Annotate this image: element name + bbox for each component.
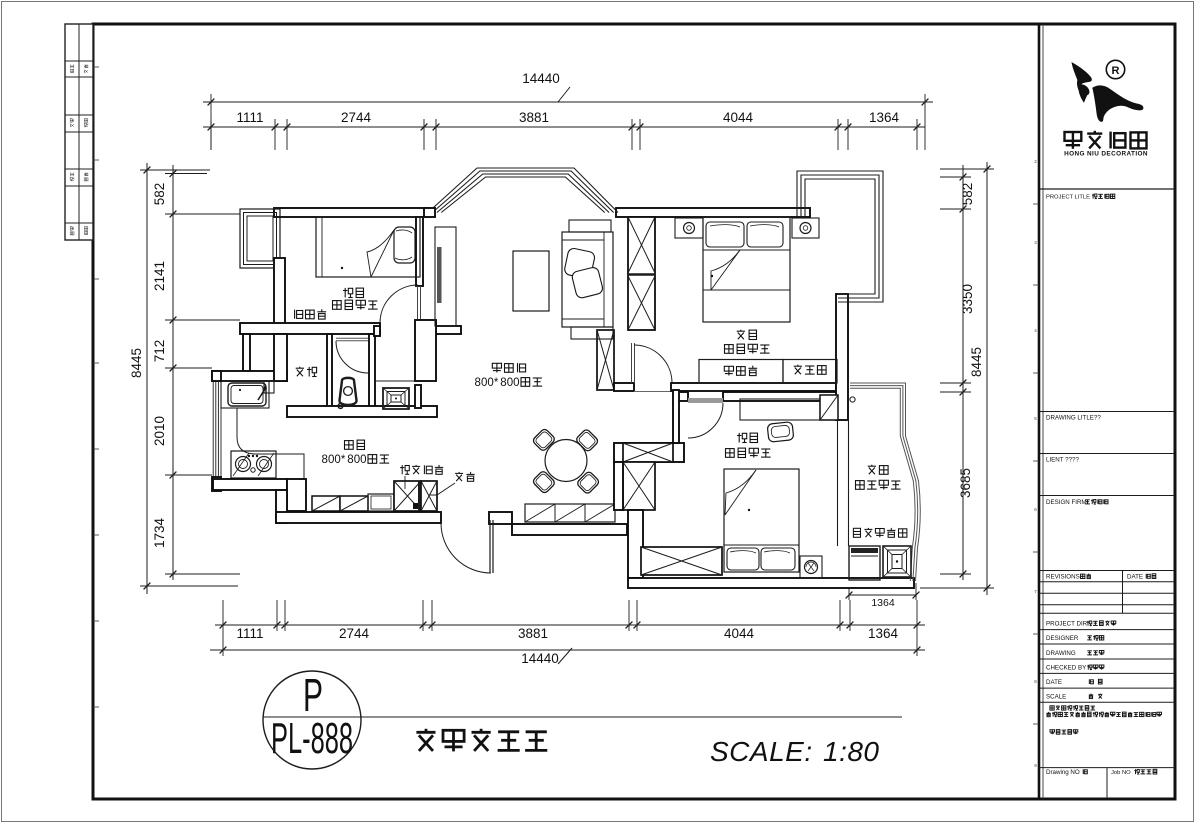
svg-text:3881: 3881 (519, 110, 549, 125)
svg-text:1:80: 1:80 (823, 736, 880, 767)
svg-text:DESIGN FIRM: DESIGN FIRM (1046, 499, 1087, 506)
svg-text:LIENT ????: LIENT ???? (1046, 457, 1079, 464)
svg-text:4: 4 (1034, 328, 1037, 333)
svg-text:14440: 14440 (521, 651, 559, 666)
svg-text:1111: 1111 (236, 110, 263, 125)
svg-text:HONG NIU DECORATION: HONG NIU DECORATION (1064, 151, 1148, 158)
svg-text:3881: 3881 (518, 626, 548, 641)
svg-text:582: 582 (152, 183, 167, 206)
svg-text:Drawing NO: Drawing NO (1046, 769, 1080, 776)
svg-text:1734: 1734 (152, 517, 167, 548)
svg-text:9: 9 (1034, 763, 1037, 768)
svg-text:1364: 1364 (868, 626, 899, 641)
svg-text:8: 8 (322, 454, 328, 466)
svg-text:SCALE:: SCALE: (710, 736, 813, 767)
svg-text:4044: 4044 (724, 626, 755, 641)
svg-text:3350: 3350 (960, 284, 975, 314)
svg-text:8: 8 (475, 377, 481, 389)
svg-text:*: * (341, 454, 346, 466)
svg-text:*: * (494, 377, 499, 389)
svg-text:PROJECT LITLE: PROJECT LITLE (1046, 195, 1090, 201)
svg-text:712: 712 (152, 340, 167, 363)
svg-text:1364: 1364 (869, 110, 900, 125)
svg-text:3: 3 (1034, 240, 1037, 245)
svg-text:3685: 3685 (958, 468, 973, 498)
svg-text:4044: 4044 (723, 110, 754, 125)
svg-text:2744: 2744 (339, 626, 370, 641)
svg-text:2: 2 (1034, 159, 1037, 164)
svg-text:DATE: DATE (1046, 679, 1062, 686)
svg-text:1364: 1364 (871, 597, 895, 609)
svg-text:0: 0 (334, 454, 340, 466)
svg-text:0: 0 (328, 454, 334, 466)
svg-text:2010: 2010 (152, 416, 167, 446)
svg-text:PROJECT DIR: PROJECT DIR (1046, 621, 1088, 628)
svg-text:0: 0 (481, 377, 487, 389)
svg-text:DESIGNER: DESIGNER (1046, 635, 1079, 642)
svg-text:8445: 8445 (969, 347, 984, 377)
svg-text:PL-888: PL-888 (271, 714, 353, 763)
svg-text:DRAWING: DRAWING (1046, 650, 1076, 657)
svg-text:6: 6 (1034, 507, 1037, 512)
svg-text:14440: 14440 (522, 71, 560, 86)
svg-text:1111: 1111 (236, 626, 263, 641)
svg-text:8445: 8445 (129, 348, 144, 378)
svg-text:2744: 2744 (341, 110, 372, 125)
svg-text:Job NO: Job NO (1111, 770, 1131, 776)
svg-text:DATE: DATE (1127, 574, 1143, 581)
svg-text:DRAWING LITLE??: DRAWING LITLE?? (1046, 415, 1101, 422)
svg-text:0: 0 (513, 377, 519, 389)
svg-text:0: 0 (487, 377, 493, 389)
svg-text:SCALE: SCALE (1046, 694, 1066, 701)
svg-text:REVISIONS: REVISIONS (1046, 574, 1080, 581)
svg-text:2141: 2141 (152, 261, 167, 291)
svg-text:CHECKED BY: CHECKED BY (1046, 665, 1086, 672)
svg-text:5: 5 (1034, 416, 1037, 421)
svg-text:8: 8 (1034, 679, 1037, 684)
svg-text:0: 0 (360, 454, 366, 466)
svg-text:R: R (1112, 65, 1120, 77)
svg-text:582: 582 (960, 183, 975, 206)
svg-text:7: 7 (1034, 589, 1037, 594)
